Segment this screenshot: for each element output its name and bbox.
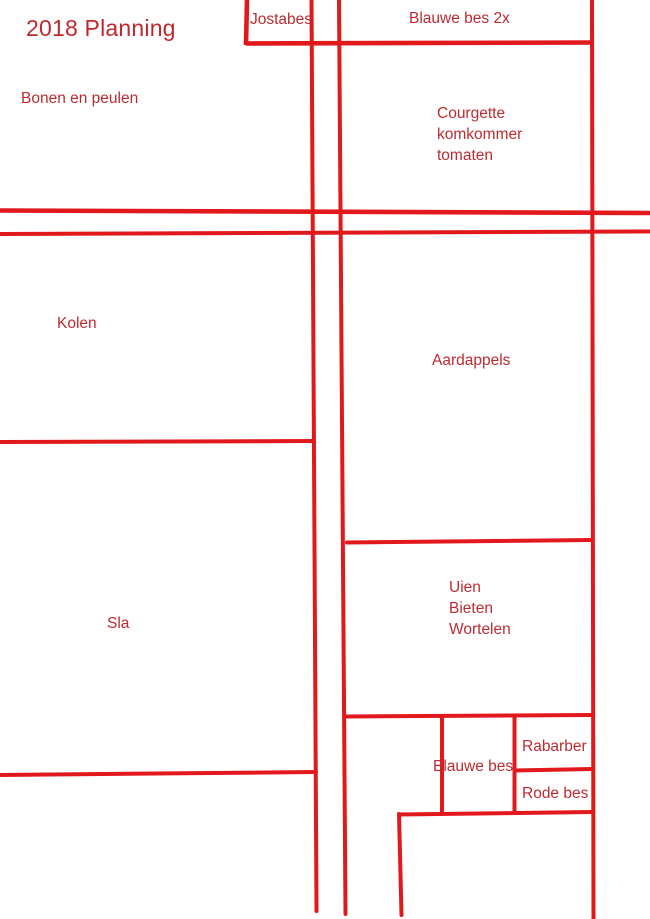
- plot-label-aardappels: Aardappels: [432, 351, 510, 370]
- plot-label-rabarber: Rabarber: [522, 737, 587, 756]
- plot-label-courgette: Courgette: [437, 104, 522, 125]
- lower-path-border: [0, 232, 650, 235]
- page-title: 2018 Planning: [26, 14, 176, 43]
- rode-bes-bottom-border: [398, 812, 592, 815]
- corridor-left-border: [312, 0, 317, 911]
- rabarber-rodebes-divider: [514, 769, 593, 771]
- plot-label-uien-group: Uien Bieten Wortelen: [449, 578, 511, 640]
- corridor-right-border: [339, 0, 346, 914]
- plot-border-lines: [0, 0, 650, 919]
- plot-label-blauwe-bes: Blauwe bes: [433, 757, 513, 776]
- garden-plan-2018: 2018 Planning Bonen en peulen Jostabes B…: [0, 0, 650, 919]
- plot-label-uien: Uien: [449, 578, 511, 599]
- plot-label-blauwe-bes-2x: Blauwe bes 2x: [409, 9, 510, 28]
- kolen-bottom-border: [0, 441, 314, 442]
- plot-label-kolen: Kolen: [57, 314, 97, 333]
- aardappels-bottom-border: [347, 540, 592, 543]
- top-boxes-bottom-border: [246, 43, 592, 44]
- plot-label-wortelen: Wortelen: [449, 620, 511, 641]
- plot-label-courgette-group: Courgette komkommer tomaten: [437, 104, 522, 166]
- plot-label-tomaten: tomaten: [437, 146, 522, 167]
- bottom-inner-left-border: [399, 814, 402, 915]
- plot-label-komkommer: komkommer: [437, 125, 522, 146]
- uien-bottom-border: [346, 715, 593, 717]
- plot-label-bonen-en-peulen: Bonen en peulen: [21, 89, 138, 108]
- right-main-border: [592, 0, 594, 919]
- plot-label-jostabes: Jostabes: [250, 10, 312, 29]
- jostabes-box-left-border: [246, 0, 247, 45]
- sla-bottom-border: [0, 772, 316, 775]
- plot-label-rode-bes: Rode bes: [522, 784, 588, 803]
- upper-path-border: [0, 211, 650, 214]
- plot-label-bieten: Bieten: [449, 599, 511, 620]
- plot-label-sla: Sla: [107, 614, 129, 633]
